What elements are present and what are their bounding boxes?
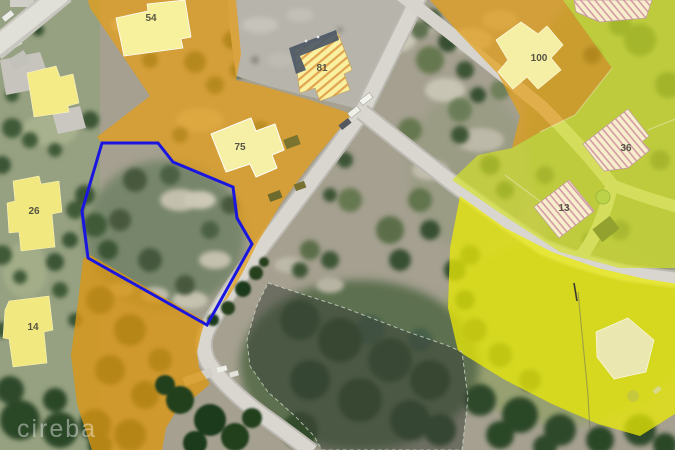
parcel-label-14: 14 xyxy=(27,322,39,333)
parcel-label-26: 26 xyxy=(28,206,40,217)
parcel-label-13: 13 xyxy=(558,203,570,214)
parcel-label-75: 75 xyxy=(234,142,246,153)
parcel-label-100: 100 xyxy=(531,53,548,64)
parcel-label-54: 54 xyxy=(145,13,157,24)
parcel-label-36: 36 xyxy=(620,143,632,154)
parcel-label-81: 81 xyxy=(316,63,328,74)
parcel-map-image: 54 81 100 75 26 14 36 13 cireba xyxy=(0,0,675,450)
listing-photo-aerial-parcel-map: 54 81 100 75 26 14 36 13 cireba xyxy=(0,0,675,450)
cireba-watermark: cireba xyxy=(17,415,97,443)
